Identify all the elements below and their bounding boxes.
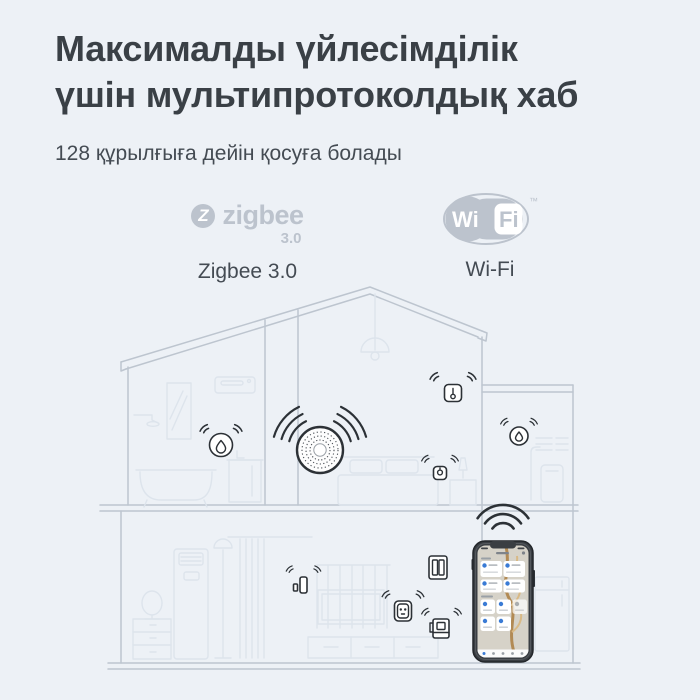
app-card [481,580,503,593]
home-tab-icon [483,652,486,655]
water-pipe [531,447,540,500]
app-title-bar [496,552,509,554]
sink-faucet [237,451,244,458]
shower-head [147,422,159,427]
pendant-bulb [371,352,379,360]
app-tile [481,600,496,615]
hub-device [271,404,370,473]
smartphone [472,505,536,662]
floor-lamp-shade [214,539,232,548]
table-lamp [459,458,467,478]
mirror [167,383,191,439]
roof-left-overhang [121,362,126,371]
bed [338,475,438,505]
pillow-right [386,460,418,473]
phone-screen [478,546,529,658]
bedroom-furniture [338,457,476,505]
smart-kettle [421,608,462,638]
curtains [240,539,264,658]
tv-wall-panel [317,565,390,628]
annex-furniture [531,438,568,502]
foundation [108,663,580,669]
wall-switch [429,556,447,579]
close-icon [522,551,525,554]
app-tile [481,617,496,632]
phone-notch [490,541,516,549]
house-illustration [0,0,700,700]
app-tile [513,600,528,615]
bathroom-furniture [134,377,263,507]
app-tile [497,600,512,615]
temperature-sensor-bedroom [429,372,476,402]
water-leak-sensor-annex [500,418,538,445]
app-card [504,561,526,577]
wifi-waves-icon [478,505,529,529]
pillow-left [350,460,382,473]
roof-top [121,287,482,362]
product-infographic: Максималды үйлесімділік үшін мультипрото… [0,0,700,700]
smart-plug [382,590,425,621]
annex-roof [482,385,573,392]
section-label [481,596,493,598]
app-card [481,561,503,577]
round-mirror [142,591,162,615]
radiator [536,438,568,450]
nightstand [450,480,476,505]
motion-sensor-bedroom [421,455,459,480]
water-leak-sensor-bathroom [199,424,242,457]
app-card [504,580,526,593]
section-label [481,558,491,560]
roof-soffit [126,294,478,369]
phone-nav-bar [478,650,529,658]
app-tile [497,617,512,632]
floor-lamp-pole [215,550,231,658]
fridge [535,577,569,651]
sink-vanity [229,460,261,502]
nav-icon [492,652,495,655]
door-window-sensor [286,565,322,593]
hub-center [314,444,326,456]
bathtub [136,470,216,500]
nav-icon [502,652,505,655]
nav-icon [521,652,524,655]
nav-icon [511,652,514,655]
